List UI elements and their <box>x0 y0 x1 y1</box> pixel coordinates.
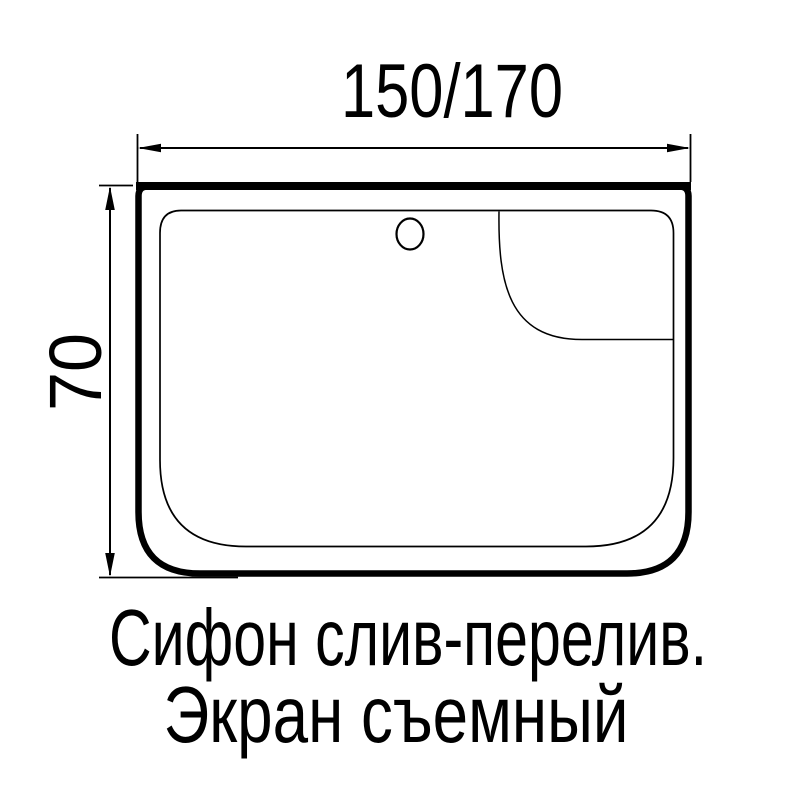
width-dimension: 150/170 <box>138 49 691 182</box>
arrowhead-up-icon <box>105 187 115 211</box>
caption: Сифон слив-перелив. Экран съемный <box>109 593 707 759</box>
height-dimension-label: 70 <box>34 333 117 411</box>
arrowhead-left-icon <box>138 144 161 153</box>
shower-tray-diagram: 150/170 70 Сифон слив-перелив. Экран съе… <box>0 0 800 800</box>
caption-line-2: Экран съемный <box>164 670 629 759</box>
tub-body <box>136 186 691 574</box>
caption-line-1: Сифон слив-перелив. <box>109 593 707 682</box>
arrowhead-right-icon <box>667 144 690 153</box>
width-dimension-label: 150/170 <box>341 49 563 134</box>
arrowhead-down-icon <box>105 553 115 577</box>
diagram-page: 150/170 70 Сифон слив-перелив. Экран съе… <box>0 0 800 800</box>
tub-outer-outline <box>139 187 689 574</box>
